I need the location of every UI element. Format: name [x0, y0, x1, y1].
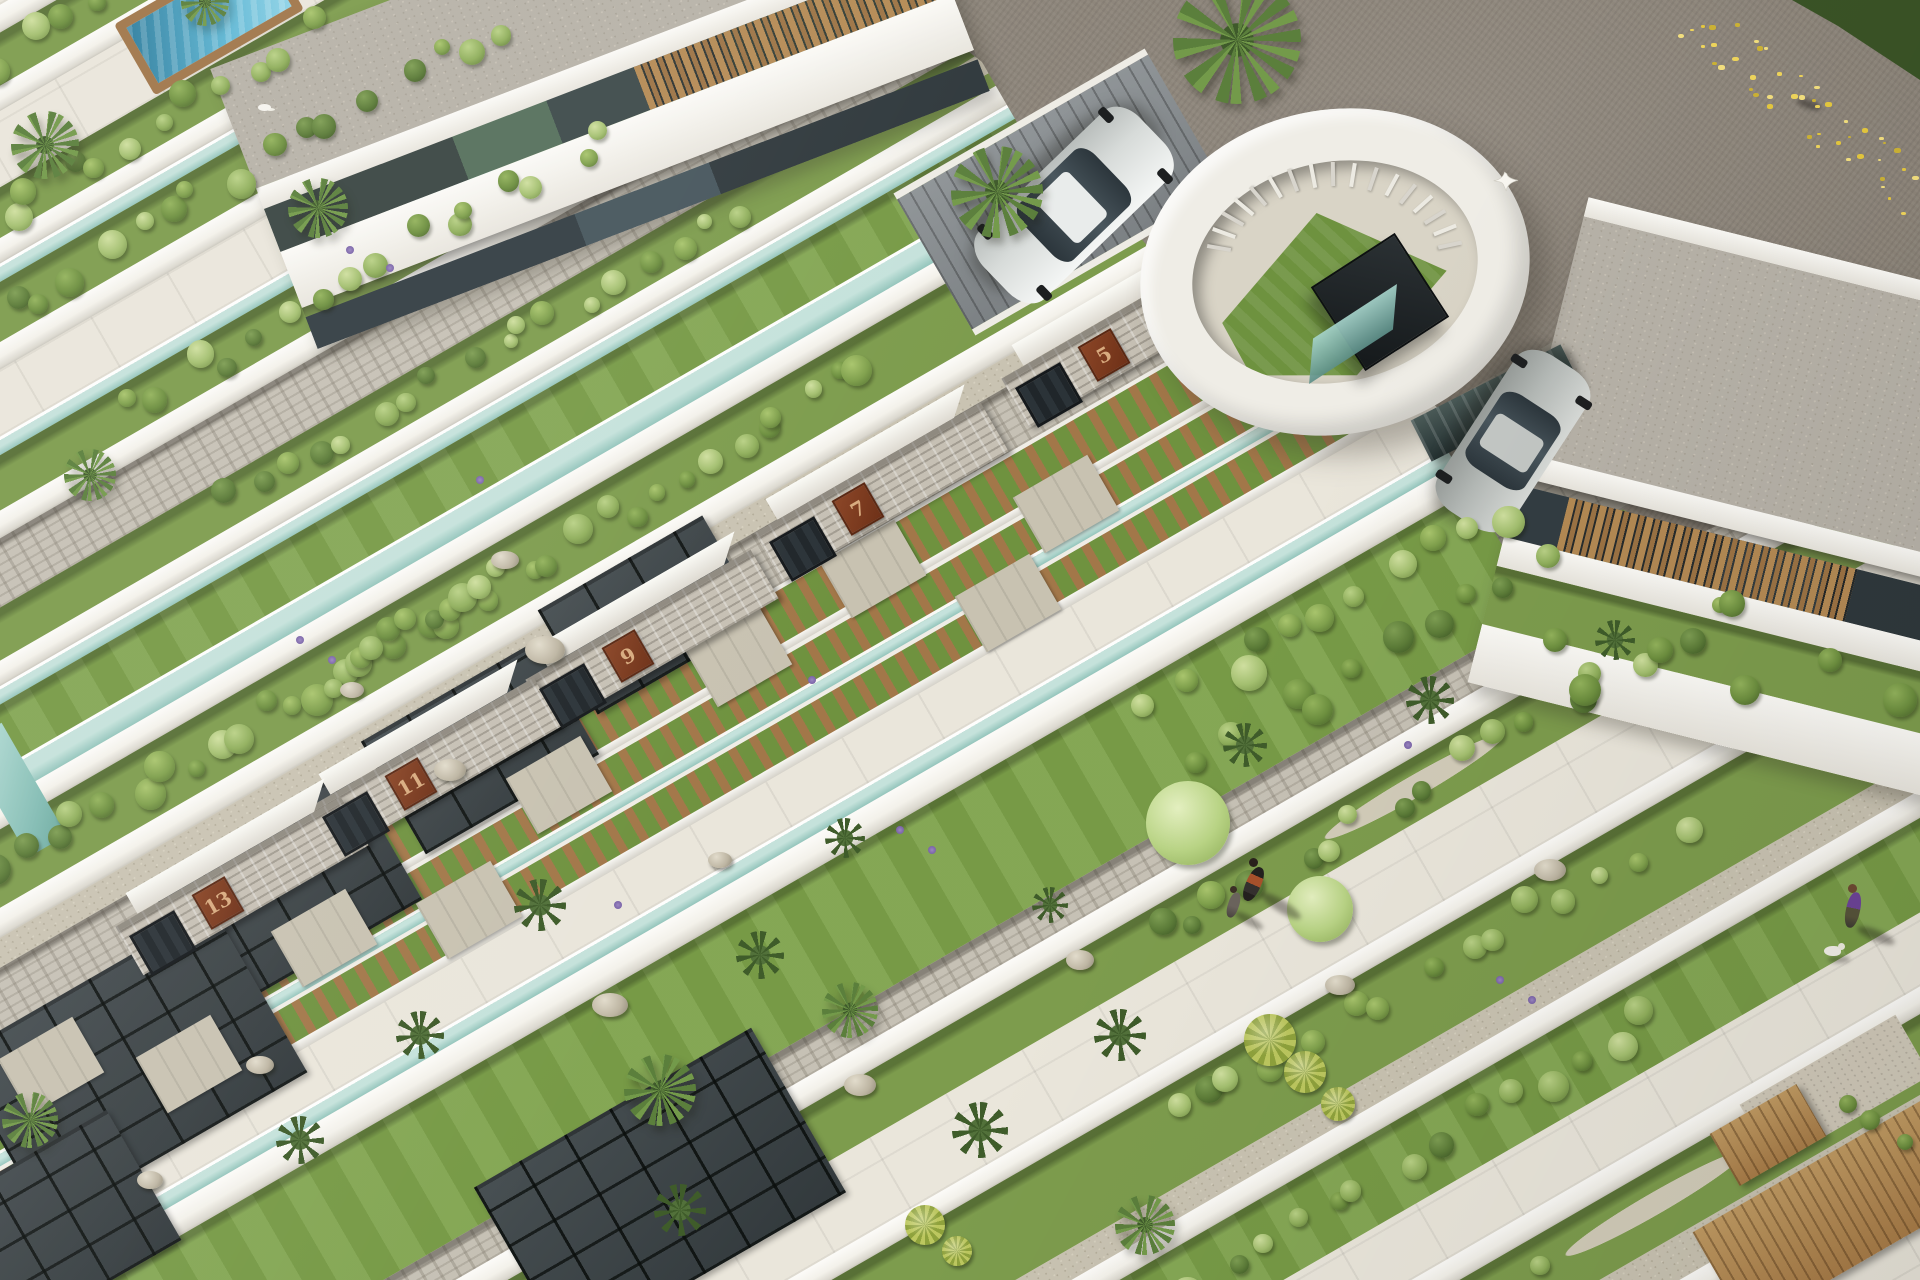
fallen-petal — [1754, 40, 1759, 44]
fallen-petal — [1848, 136, 1851, 138]
garden-rock — [525, 636, 565, 664]
fallen-petal — [1711, 43, 1717, 47]
garden-bush — [1530, 1256, 1549, 1275]
fallen-petal — [1815, 105, 1820, 108]
agave-plant — [1032, 887, 1068, 923]
garden-bush — [805, 380, 822, 397]
fallen-petal — [1879, 137, 1884, 140]
garden-bush — [1383, 621, 1415, 653]
agave-plant — [1595, 620, 1635, 660]
fallen-petal — [1844, 120, 1848, 123]
agave-plant — [514, 879, 566, 931]
garden-bush — [1511, 886, 1538, 913]
garden-bush — [1883, 683, 1917, 717]
lavender-plant — [614, 901, 622, 909]
fallen-petal — [1799, 95, 1805, 100]
garden-bush — [1253, 1234, 1273, 1254]
garden-bush — [459, 39, 485, 65]
garden-bush — [313, 289, 334, 310]
fallen-petal — [1883, 142, 1886, 144]
garden-bush — [504, 334, 518, 348]
garden-bush — [1591, 867, 1608, 884]
palm-tree — [624, 1054, 696, 1126]
fallen-petal — [1857, 154, 1864, 159]
fallen-petal — [1767, 95, 1773, 99]
garden-bush — [1231, 655, 1267, 691]
fallen-petal — [1862, 128, 1869, 133]
lavender-plant — [296, 636, 304, 644]
garden-bush — [312, 114, 336, 138]
garden-bush — [1719, 590, 1746, 617]
garden-bush — [283, 696, 301, 714]
fallen-petal — [1901, 212, 1906, 215]
garden-bush — [227, 169, 257, 199]
garden-bush — [56, 801, 82, 827]
garden-bush — [263, 133, 286, 156]
lavender-plant — [346, 246, 354, 254]
fallen-petal — [1718, 65, 1725, 70]
garden-rock — [491, 551, 519, 569]
agave-plant — [276, 1116, 324, 1164]
fallen-petal — [1846, 158, 1851, 161]
palm-tree — [1115, 1195, 1175, 1255]
garden-bush — [266, 48, 289, 71]
fallen-petal — [1701, 45, 1705, 48]
garden-bush — [519, 176, 542, 199]
fence-slat — [1331, 162, 1335, 186]
garden-bush — [649, 484, 665, 500]
garden-bush — [188, 760, 204, 776]
fallen-petal — [1757, 46, 1763, 50]
garden-bush — [5, 203, 33, 231]
fallen-petal — [1836, 141, 1842, 145]
garden-bush — [1538, 1071, 1569, 1102]
garden-bush — [1572, 1051, 1592, 1071]
garden-bush — [697, 214, 712, 229]
garden-bush — [1429, 1132, 1455, 1158]
garden-bush — [1389, 550, 1417, 578]
garden-bush — [1680, 628, 1706, 654]
flying-dove — [1490, 168, 1521, 196]
fallen-petal — [1825, 102, 1831, 107]
garden-rock — [340, 682, 364, 698]
garden-bush — [356, 90, 378, 112]
garden-bush — [1839, 1095, 1857, 1113]
garden-bush — [1543, 628, 1567, 652]
garden-bush — [1278, 614, 1301, 637]
garden-bush — [601, 270, 626, 295]
garden-bush — [498, 170, 520, 192]
garden-bush — [1647, 637, 1673, 663]
garden-bush — [1818, 648, 1842, 672]
fallen-petal — [1880, 177, 1886, 181]
garden-bush — [359, 636, 383, 660]
garden-bush — [1608, 1032, 1637, 1061]
garden-bush — [1425, 610, 1453, 638]
garden-bush — [176, 181, 193, 198]
garden-bush — [1492, 577, 1512, 597]
person-head — [1230, 886, 1237, 893]
garden-bush — [841, 355, 872, 386]
garden-bush — [119, 138, 141, 160]
garden-rock — [137, 1171, 163, 1189]
garden-bush — [217, 358, 236, 377]
garden-bush — [363, 253, 388, 278]
fallen-petal — [1777, 72, 1782, 75]
garden-bush — [254, 471, 275, 492]
fallen-petal — [1807, 135, 1812, 138]
fallen-petal — [1799, 75, 1803, 78]
garden-bush — [467, 575, 491, 599]
garden-bush — [530, 301, 555, 326]
garden-bush — [169, 80, 196, 107]
garden-bush — [331, 436, 349, 454]
garden-bush — [627, 507, 648, 528]
fallen-petal — [1749, 88, 1754, 91]
fallen-petal — [1732, 57, 1738, 61]
garden-bush — [1481, 929, 1503, 951]
garden-bush — [454, 202, 472, 220]
garden-bush — [417, 367, 434, 384]
garden-bush — [674, 237, 697, 260]
garden-bush — [277, 452, 299, 474]
garden-bush — [1244, 627, 1269, 652]
person-shadow — [1233, 909, 1265, 933]
garden-rock — [434, 759, 466, 781]
lavender-plant — [896, 826, 904, 834]
agave-plant — [952, 1102, 1008, 1158]
fallen-petal — [1894, 148, 1901, 153]
garden-bush — [1536, 544, 1560, 568]
garden-bush — [1175, 669, 1198, 692]
garden-bush — [1551, 889, 1576, 914]
garden-bush — [1305, 604, 1333, 632]
garden-bush — [396, 393, 416, 413]
garden-bush — [407, 214, 430, 237]
barrel-cactus — [905, 1205, 945, 1245]
dog-head — [1838, 943, 1845, 950]
garden-bush — [245, 329, 262, 346]
garden-rock — [246, 1056, 274, 1074]
round-succulent — [1287, 876, 1353, 942]
fallen-petal — [1735, 23, 1740, 27]
garden-bush — [1624, 996, 1653, 1025]
palm-tree — [288, 178, 348, 238]
palm-tree — [951, 146, 1043, 238]
garden-bush — [83, 158, 103, 178]
agave-plant — [1406, 676, 1454, 724]
ground-bird — [258, 104, 271, 111]
lavender-plant — [476, 476, 484, 484]
garden-bush — [735, 434, 759, 458]
garden-bush — [1230, 1255, 1249, 1274]
garden-bush — [1149, 908, 1176, 935]
garden-bush — [1185, 752, 1206, 773]
fallen-petal — [1912, 176, 1918, 180]
aerial-architecture-render: 5791113 — [0, 0, 1920, 1280]
palm-tree — [11, 111, 79, 179]
garden-bush — [28, 294, 48, 314]
fallen-petal — [1816, 145, 1820, 148]
garden-bush — [597, 495, 620, 518]
palm-tree — [2, 1092, 58, 1148]
barrel-cactus — [942, 1236, 972, 1266]
garden-bush — [1302, 694, 1333, 725]
garden-bush — [144, 751, 175, 782]
fallen-petal — [1767, 104, 1773, 108]
fallen-petal — [1817, 133, 1820, 135]
agave-plant — [825, 818, 865, 858]
barrel-cactus — [1321, 1087, 1355, 1121]
garden-bush — [404, 59, 426, 81]
garden-bush — [507, 316, 525, 334]
garden-bush — [98, 230, 127, 259]
lavender-plant — [386, 264, 394, 272]
agave-plant — [736, 931, 784, 979]
garden-bush — [1897, 1134, 1913, 1150]
garden-rock — [1066, 950, 1094, 970]
garden-bush — [1340, 1180, 1362, 1202]
garden-bush — [1366, 997, 1389, 1020]
garden-bush — [465, 347, 486, 368]
garden-rock — [708, 852, 732, 868]
fallen-petal — [1709, 25, 1716, 30]
garden-bush — [156, 114, 173, 131]
person-head — [1848, 884, 1857, 893]
lavender-plant — [328, 656, 336, 664]
garden-bush — [187, 340, 215, 368]
dog-shadow — [1828, 956, 1850, 963]
agave-plant — [1223, 723, 1267, 767]
agave-plant — [396, 1011, 444, 1059]
garden-bush — [1514, 712, 1533, 731]
garden-bush — [491, 25, 512, 46]
lavender-plant — [808, 676, 816, 684]
garden-rock — [844, 1074, 876, 1096]
garden-bush — [729, 206, 751, 228]
garden-bush — [135, 778, 166, 809]
garden-bush — [1289, 1208, 1308, 1227]
garden-rock — [592, 993, 628, 1017]
lavender-plant — [928, 846, 936, 854]
garden-bush — [1131, 694, 1155, 718]
garden-bush — [563, 514, 593, 544]
garden-bush — [1395, 798, 1415, 818]
fallen-petal — [1750, 75, 1756, 79]
garden-bush — [1499, 1079, 1523, 1103]
agave-plant — [654, 1184, 706, 1236]
palm-tree — [822, 982, 878, 1038]
person-walker — [1838, 888, 1886, 944]
garden-bush — [1860, 1110, 1880, 1130]
garden-bush — [22, 12, 50, 40]
garden-bush — [7, 286, 30, 309]
fallen-petal — [1888, 197, 1891, 199]
garden-bush — [1402, 1154, 1428, 1180]
garden-bush — [1168, 1093, 1192, 1117]
garden-bush — [679, 471, 695, 487]
person-dog — [1818, 942, 1866, 998]
garden-bush — [1730, 675, 1760, 705]
garden-bush — [1492, 506, 1524, 538]
person-body — [1842, 891, 1863, 929]
barrel-cactus — [1284, 1051, 1326, 1093]
fallen-petal — [1753, 93, 1760, 98]
palm-tree — [64, 449, 116, 501]
lavender-plant — [1496, 976, 1504, 984]
garden-rock — [1325, 975, 1355, 995]
round-succulent — [1146, 781, 1230, 865]
lavender-plant — [1404, 741, 1412, 749]
person-child — [1219, 884, 1267, 940]
garden-bush — [10, 178, 37, 205]
garden-rock — [1534, 859, 1566, 881]
garden-bush — [1412, 781, 1432, 801]
garden-bush — [1676, 817, 1703, 844]
garden-bush — [161, 196, 187, 222]
garden-bush — [1183, 916, 1200, 933]
lavender-plant — [1528, 996, 1536, 1004]
person-head — [1249, 858, 1258, 867]
garden-bush — [1569, 674, 1601, 706]
garden-bush — [698, 449, 723, 474]
agave-plant — [1094, 1009, 1146, 1061]
